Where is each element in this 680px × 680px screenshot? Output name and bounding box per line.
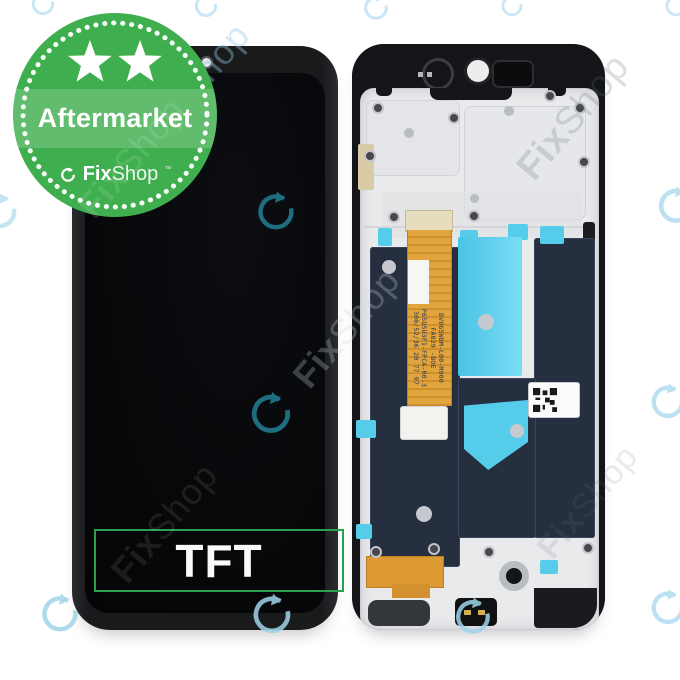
speaker-grille (368, 600, 430, 626)
flex-connector (405, 210, 453, 232)
flex-line: P65Q5U3F1-FPCA-R0.3 (420, 288, 428, 408)
panel-hole (478, 314, 494, 330)
speaker-housing (534, 588, 597, 628)
screw (546, 92, 554, 100)
adhesive-strip (356, 420, 376, 438)
watermark-refresh-icon (450, 594, 496, 640)
screw (485, 548, 493, 556)
panel-hole (416, 506, 432, 522)
rear-camera-hole (464, 57, 492, 85)
sim-sticker (358, 144, 374, 190)
adhesive-strip (378, 228, 392, 246)
tft-label: TFT (175, 534, 262, 588)
watermark-refresh-icon (252, 188, 300, 236)
adhesive-strip (356, 524, 372, 539)
flex-cable-text: BV065WBM-L00-M900 FA029 -BOE P65Q5U3F1-F… (411, 288, 445, 408)
speaker-cutout (492, 60, 534, 88)
watermark-refresh-icon (245, 388, 297, 440)
product-photo: FixShop TFT (0, 0, 680, 680)
screw (450, 114, 458, 122)
plate-hole (470, 194, 479, 203)
qr-code-icon (533, 388, 557, 412)
watermark-refresh-icon (662, 0, 680, 20)
screw (366, 152, 374, 160)
flex-end-label (400, 406, 448, 440)
frame-notch (418, 72, 423, 77)
flex-line: FA029 -BOE (428, 288, 436, 408)
rating-stars-icon (65, 39, 165, 87)
frame-tab (376, 88, 392, 96)
camera-lens-hole-center (506, 568, 522, 584)
watermark-refresh-icon (653, 183, 680, 229)
flex-line: BV065WBM-L00-M900 (437, 288, 445, 408)
frame-notch (427, 72, 432, 77)
watermark-refresh-icon (646, 380, 680, 424)
adhesive-strip (540, 226, 564, 244)
watermark-refresh-icon (36, 590, 84, 638)
watermark-refresh-icon (498, 0, 526, 20)
watermark-refresh-icon (646, 586, 680, 630)
watermark-refresh-icon (360, 0, 392, 24)
flex-line: 300/52/36 20 77 97 (411, 288, 419, 408)
plate-hole (404, 128, 414, 138)
screw (584, 544, 592, 552)
bottom-flex (392, 584, 430, 598)
frame-tab (430, 88, 512, 100)
watermark-refresh-icon (247, 590, 297, 640)
screw (430, 545, 438, 553)
screw (470, 212, 478, 220)
plate-hole (504, 106, 514, 116)
trademark-mark: ™ (164, 166, 171, 173)
screw (390, 213, 398, 221)
screw (374, 104, 382, 112)
qr-label (528, 382, 580, 418)
adhesive-strip (458, 237, 522, 376)
screw (372, 548, 380, 556)
fixshop-refresh-icon (59, 166, 77, 184)
screw (580, 158, 588, 166)
panel-hole (510, 424, 524, 438)
